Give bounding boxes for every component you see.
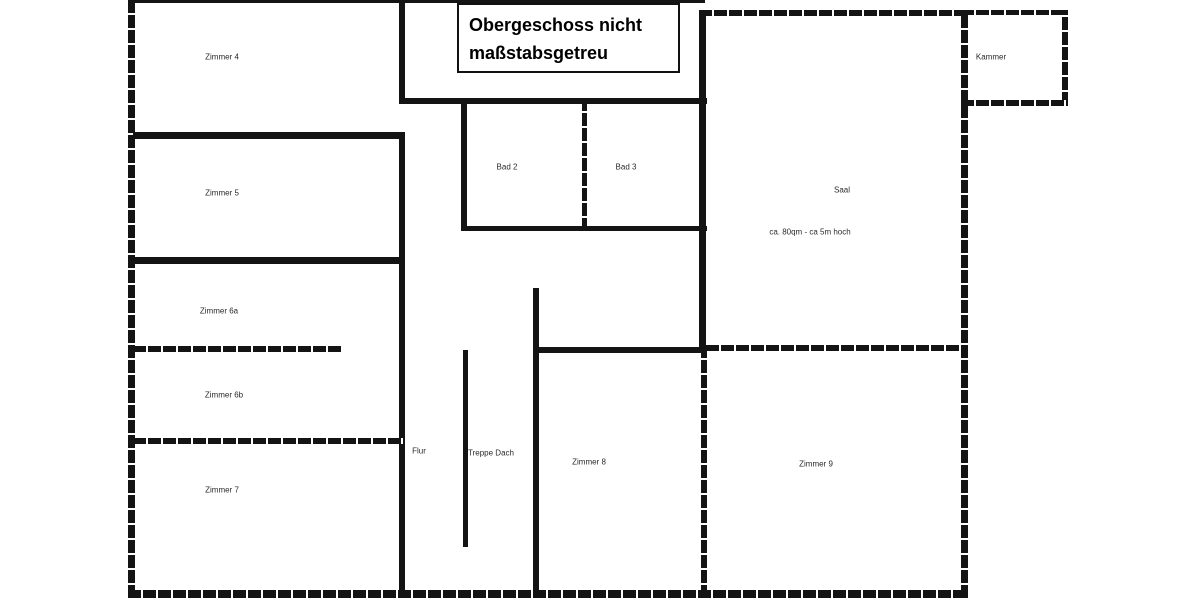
wall-kammer-bottom bbox=[961, 100, 1068, 106]
wall-zimmer8-9-divider bbox=[701, 352, 707, 598]
wall-corridor-top bbox=[399, 98, 707, 104]
wall-bad-bottom bbox=[461, 226, 707, 231]
room-label-zimmer-6b: Zimmer 6b bbox=[205, 391, 243, 400]
wall-zimmer5-top bbox=[133, 132, 405, 139]
wall-zimmer6a-6b-divider bbox=[133, 346, 341, 352]
room-label-zimmer-5: Zimmer 5 bbox=[205, 189, 239, 198]
plan-title-line-1: Obergeschoss nicht bbox=[469, 11, 678, 39]
room-label-saal: Saal bbox=[834, 186, 850, 195]
wall-saal-top bbox=[699, 10, 968, 16]
wall-zimmer6b-7-divider bbox=[133, 438, 405, 444]
wall-outer-bottom bbox=[128, 590, 968, 598]
wall-zimmer5-bottom bbox=[133, 257, 405, 264]
wall-outer-left bbox=[128, 0, 135, 598]
wall-bad2-left bbox=[461, 104, 467, 231]
room-note-saal-size: ca. 80qm - ca 5m hoch bbox=[769, 228, 850, 237]
wall-zimmer8-top bbox=[533, 347, 707, 353]
plan-title-line-2: maßstabsgetreu bbox=[469, 39, 678, 67]
wall-zimmer4-right bbox=[399, 0, 405, 103]
wall-kammer-top bbox=[961, 10, 1068, 15]
floor-plan: Obergeschoss nicht maßstabsgetreu Zimmer… bbox=[0, 0, 1200, 600]
room-label-zimmer-8: Zimmer 8 bbox=[572, 458, 606, 467]
wall-leftcol-right bbox=[399, 132, 405, 598]
wall-outer-right bbox=[961, 10, 968, 598]
wall-saal-left bbox=[699, 10, 706, 352]
room-label-zimmer-9: Zimmer 9 bbox=[799, 460, 833, 469]
room-label-flur: Flur bbox=[412, 447, 426, 456]
room-label-zimmer-6a: Zimmer 6a bbox=[200, 307, 238, 316]
wall-mid-vertical bbox=[533, 288, 539, 598]
wall-bad2-bad3-divider bbox=[582, 103, 587, 231]
plan-title-box: Obergeschoss nicht maßstabsgetreu bbox=[457, 3, 680, 73]
room-label-zimmer-4: Zimmer 4 bbox=[205, 53, 239, 62]
wall-zimmer9-top bbox=[706, 345, 961, 351]
room-label-bad-3: Bad 3 bbox=[616, 163, 637, 172]
wall-kammer-right bbox=[1062, 10, 1068, 105]
room-label-treppe-dach: Treppe Dach bbox=[468, 449, 514, 458]
room-label-bad-2: Bad 2 bbox=[497, 163, 518, 172]
room-label-zimmer-7: Zimmer 7 bbox=[205, 486, 239, 495]
room-label-kammer: Kammer bbox=[976, 53, 1006, 62]
